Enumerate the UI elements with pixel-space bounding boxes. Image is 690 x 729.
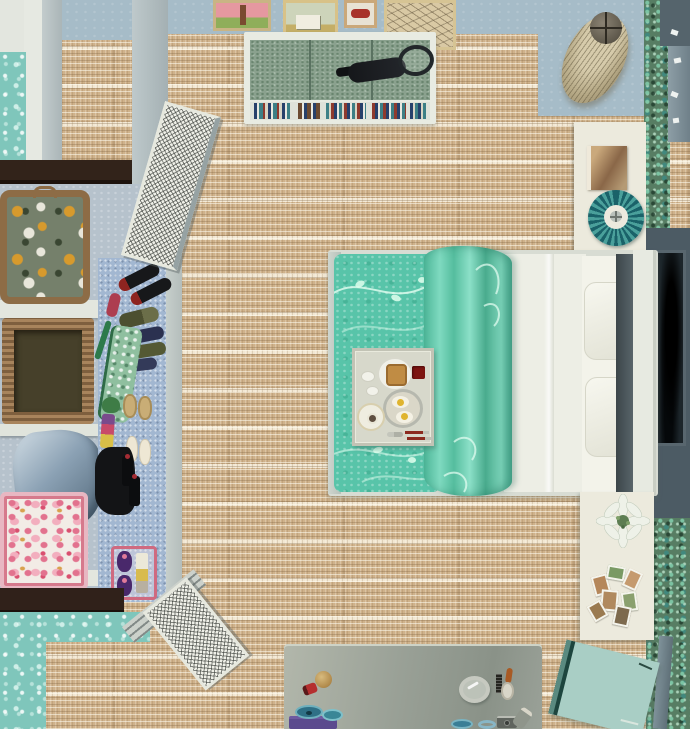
breakfast-tray[interactable] [352, 348, 434, 446]
saucer [357, 403, 385, 431]
magazine[interactable] [587, 146, 627, 190]
blanket-pattern [424, 246, 512, 496]
bulb-cross [610, 216, 622, 218]
rose-trim [125, 454, 130, 459]
sheet-fold [544, 254, 554, 492]
cap-cross [590, 27, 622, 29]
bedroom-overhead-scene [0, 0, 690, 729]
small-accessories[interactable] [100, 414, 115, 449]
fried-egg [396, 411, 413, 423]
books-row [250, 102, 430, 120]
toast-plate [377, 357, 413, 391]
blue-bowl[interactable] [451, 719, 473, 729]
tan-slipper[interactable] [138, 396, 152, 420]
dark-framed-artwork[interactable] [654, 250, 686, 446]
lily-bouquet[interactable] [596, 494, 650, 548]
bow [122, 554, 127, 559]
blue-bowl[interactable] [322, 709, 343, 721]
rack-items [136, 553, 148, 593]
bow [122, 578, 127, 583]
wall-beam-top [0, 160, 132, 184]
book-spines[interactable] [372, 103, 406, 119]
green-hat[interactable] [102, 397, 120, 413]
lamp-shade-ring [604, 205, 628, 229]
wicker-basket[interactable] [2, 318, 94, 424]
fried-egg [392, 396, 409, 408]
page-line [621, 719, 639, 725]
suitcase-handle [33, 186, 57, 198]
damask-wall-left [0, 612, 46, 729]
painting-house-shape [296, 15, 320, 29]
painting-tree-trunk [240, 5, 246, 25]
wall-beam-bottom [0, 588, 124, 614]
closet-top-shelf-edge [0, 0, 26, 60]
headboard-gap [616, 254, 634, 492]
purple-pump [117, 551, 132, 572]
small-cup [366, 386, 379, 396]
divider [309, 40, 311, 100]
book-spines[interactable] [326, 103, 366, 119]
mirror-glint [467, 681, 479, 690]
book-spines[interactable] [298, 103, 320, 119]
yolk [401, 413, 408, 420]
boot-shaft [129, 476, 140, 506]
painting-pink-landscape[interactable] [213, 0, 271, 31]
fork [405, 431, 429, 434]
gray-wall-band [42, 0, 62, 166]
toast [386, 364, 407, 386]
page-line [639, 663, 653, 671]
hairbrush[interactable] [501, 682, 514, 700]
car-shape [351, 9, 370, 18]
folded-blanket[interactable] [424, 246, 512, 496]
teacup [367, 413, 378, 424]
book-spines[interactable] [254, 103, 290, 119]
damask-wall-top-left [0, 52, 26, 166]
yolk [397, 399, 404, 406]
tan-slipper[interactable] [123, 394, 137, 418]
pleated-table-lamp[interactable] [588, 190, 644, 246]
hand-mirror[interactable] [459, 676, 490, 703]
jam-dish [412, 366, 425, 379]
basket-interior [14, 330, 82, 412]
bowl-center [306, 711, 312, 715]
white-heel[interactable] [139, 439, 151, 465]
wall-hook [673, 118, 680, 124]
pink-floral-hamper[interactable] [0, 492, 88, 590]
dark-wall-corner [660, 0, 690, 46]
small-cup [361, 371, 375, 382]
book-spines[interactable] [410, 103, 426, 119]
camera-lens [504, 720, 510, 726]
blue-bowl[interactable] [295, 705, 323, 719]
knife [407, 437, 433, 440]
painting-red-car[interactable] [344, 0, 377, 28]
spoon [387, 432, 403, 437]
lamp-bulb [610, 211, 622, 222]
lamp-top-cap [590, 12, 622, 44]
floral-suitcase[interactable] [0, 190, 90, 304]
gold-compact[interactable] [315, 671, 332, 688]
headboard [633, 250, 656, 496]
blue-ring-dish[interactable] [478, 720, 496, 729]
closet-white-band [24, 0, 42, 166]
rose-trim [132, 474, 137, 479]
egg-platter [383, 389, 423, 428]
